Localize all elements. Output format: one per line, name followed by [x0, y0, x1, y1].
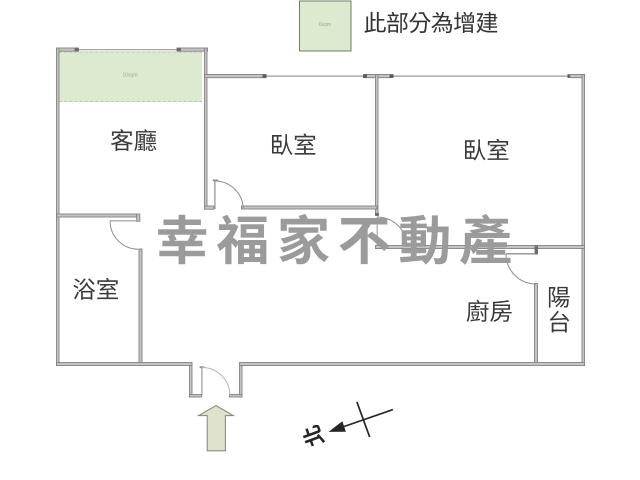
svg-text:6sqm: 6sqm	[319, 22, 331, 28]
svg-text:10sqm: 10sqm	[122, 73, 137, 79]
